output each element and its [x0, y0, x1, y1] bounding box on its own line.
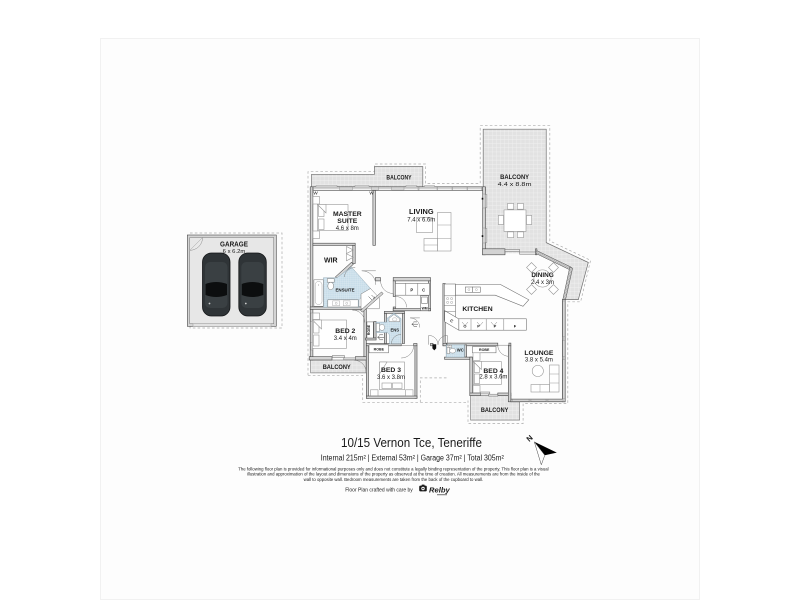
svg-text:ROBE: ROBE [374, 347, 385, 351]
svg-text:ROBE: ROBE [367, 324, 371, 335]
svg-text:3.4 x 4m: 3.4 x 4m [334, 336, 357, 342]
svg-text:P: P [410, 287, 413, 292]
svg-text:4.4 x 8.8m: 4.4 x 8.8m [498, 182, 532, 188]
svg-text:BED 3: BED 3 [381, 367, 401, 374]
svg-text:BALCONY: BALCONY [323, 364, 352, 371]
svg-text:3.6 x 3.8m: 3.6 x 3.8m [377, 375, 405, 381]
svg-text:WM: WM [422, 307, 428, 311]
svg-text:BALCONY: BALCONY [500, 174, 530, 181]
svg-text:KITCHEN: KITCHEN [462, 306, 492, 313]
svg-text:6 x 6.2m: 6 x 6.2m [223, 249, 246, 255]
svg-text:2.4 x 3m: 2.4 x 3m [531, 280, 554, 286]
svg-text:ENS: ENS [390, 327, 399, 332]
svg-text:W: W [369, 191, 374, 196]
svg-text:C: C [422, 287, 425, 292]
svg-text:7.4 x 6.6m: 7.4 x 6.6m [407, 218, 435, 224]
svg-text:WC: WC [457, 347, 464, 352]
svg-text:2.8 x 3.6m: 2.8 x 3.6m [479, 375, 507, 381]
svg-text:GARAGE: GARAGE [220, 242, 248, 249]
svg-text:MASTER: MASTER [333, 211, 362, 218]
svg-text:ROBE: ROBE [479, 348, 490, 352]
svg-text:DINING: DINING [531, 272, 553, 279]
svg-text:wall to opposite wall. Bedroom: wall to opposite wall. Bedroom measureme… [304, 477, 484, 482]
svg-text:illustration and approximation: illustration and approximation of the la… [247, 472, 541, 477]
svg-text:LIVING: LIVING [409, 207, 434, 216]
svg-text:LOUNGE: LOUNGE [524, 350, 554, 357]
svg-text:4.6 x 8m: 4.6 x 8m [336, 226, 359, 232]
svg-text:O: O [463, 323, 466, 328]
svg-text:The following floor plan is pr: The following floor plan is provided for… [238, 466, 548, 471]
svg-text:BED 2: BED 2 [335, 328, 355, 335]
svg-text:3.8 x 5.4m: 3.8 x 5.4m [525, 358, 553, 364]
svg-text:SUITE: SUITE [337, 218, 357, 225]
svg-text:BALCONY: BALCONY [481, 407, 509, 414]
svg-text:WIR: WIR [324, 258, 338, 265]
svg-text:P: P [477, 323, 480, 328]
svg-text:P: P [494, 323, 497, 328]
svg-text:ENSUITE: ENSUITE [335, 287, 354, 292]
svg-text:W: W [313, 191, 318, 196]
svg-text:BALCONY: BALCONY [386, 175, 412, 182]
svg-text:Floor Plan crafted with care b: Floor Plan crafted with care by [345, 488, 413, 494]
svg-text:Relby: Relby [429, 485, 450, 494]
svg-text:Internal 215m² | External: Internal 215m² | External 53m² | Garage … [321, 453, 504, 462]
svg-text:10/15 Vernon Tce, Teneriffe: 10/15 Vernon Tce, Teneriffe [341, 435, 482, 450]
